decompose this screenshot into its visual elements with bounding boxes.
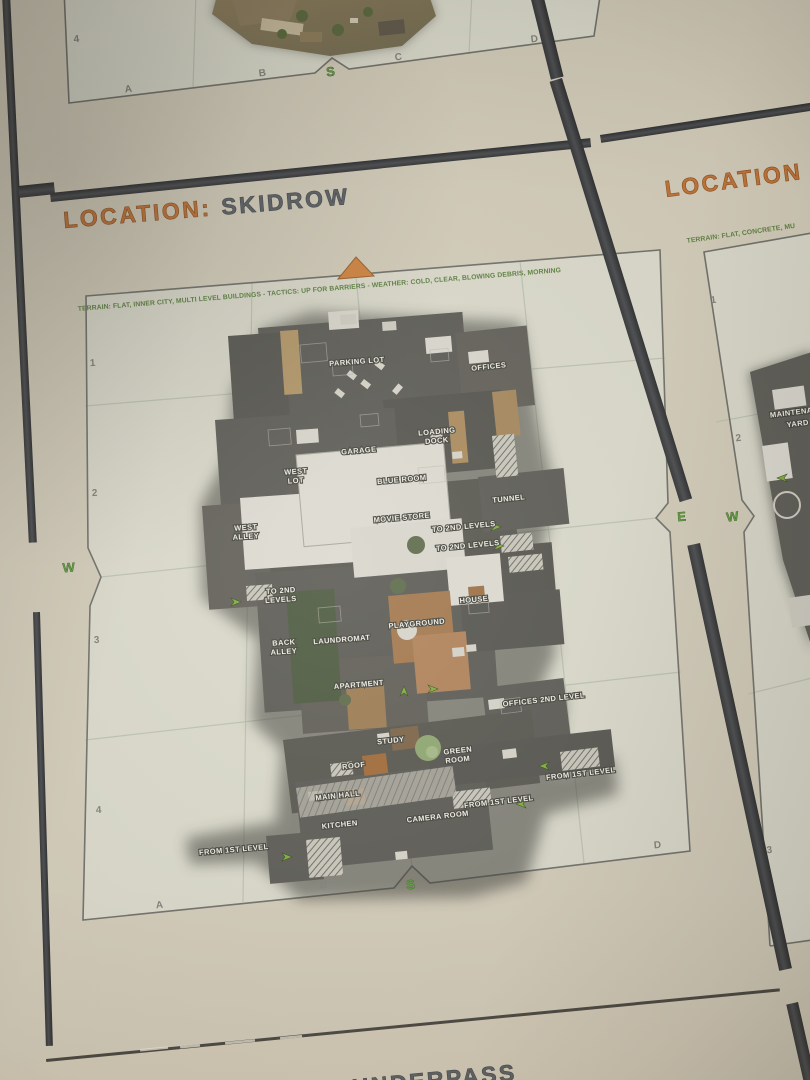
grid-col-label: C: [394, 52, 403, 64]
poster-graphic: LOCATION:SKIDROW TERRAIN: FLAT, INNER CI…: [0, 0, 810, 1080]
map-label: LOT: [287, 475, 304, 485]
map-label: ALLEY: [232, 531, 259, 542]
grid-row-label: 4: [96, 805, 103, 816]
compass-east: E: [677, 509, 687, 525]
grid-row-label: 3: [94, 635, 101, 646]
map-label: ALLEY: [270, 646, 297, 657]
grid-col-label: A: [155, 900, 164, 912]
grid-col-label: B: [258, 68, 267, 80]
grid-row-label: 2: [92, 488, 99, 499]
grid-row-label: 1: [90, 358, 97, 369]
grid-col-label: C: [489, 856, 498, 868]
grid-col-label: B: [319, 880, 328, 892]
grid-col-label: D: [653, 840, 662, 852]
map-poster-photo: LOCATION:SKIDROW TERRAIN: FLAT, INNER CI…: [0, 0, 810, 1080]
grid-col-label: D: [530, 34, 539, 46]
compass-south: S: [406, 877, 416, 893]
compass-west: W: [62, 560, 76, 576]
grid-col-label: A: [124, 84, 133, 96]
